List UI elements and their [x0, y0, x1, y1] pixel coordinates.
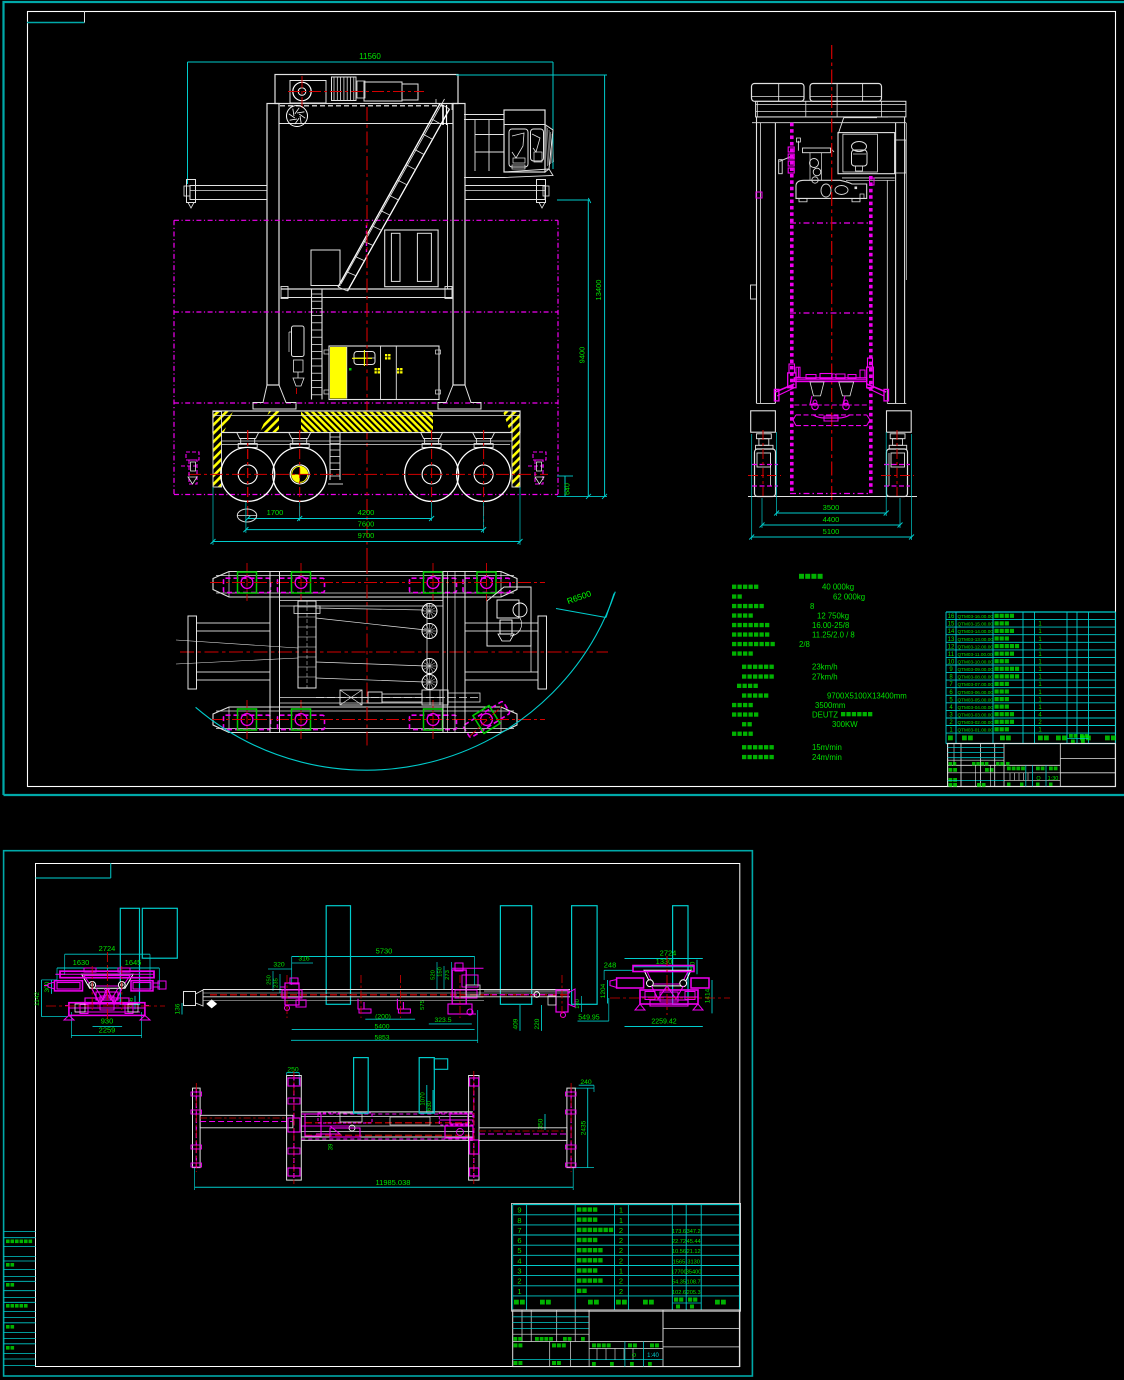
svg-text:22.72: 22.72 [672, 1239, 686, 1245]
svg-text:220: 220 [534, 1018, 541, 1029]
svg-text:150: 150 [438, 967, 444, 977]
svg-text:62 000kg: 62 000kg [833, 592, 865, 601]
svg-text:2435: 2435 [580, 1120, 587, 1135]
svg-text:347.2: 347.2 [687, 1229, 701, 1235]
svg-text:11985.038: 11985.038 [376, 1178, 411, 1187]
svg-text:QTM03-13.00.00: QTM03-13.00.00 [958, 637, 994, 642]
svg-text:5: 5 [517, 1246, 521, 1255]
svg-text:1:30: 1:30 [1048, 776, 1059, 782]
svg-text:8: 8 [517, 1216, 521, 1225]
svg-text:O: O [1036, 776, 1041, 782]
svg-text:630: 630 [427, 1100, 433, 1111]
svg-text:11.25/2.0 / 8: 11.25/2.0 / 8 [812, 630, 855, 639]
svg-text:16.00-25/8: 16.00-25/8 [812, 621, 849, 630]
svg-text:1414: 1414 [705, 988, 712, 1003]
svg-text:273: 273 [445, 970, 451, 980]
svg-text:24m/min: 24m/min [812, 753, 842, 762]
svg-text:205.3: 205.3 [687, 1290, 701, 1296]
svg-text:7600: 7600 [358, 519, 375, 528]
svg-text:520: 520 [431, 970, 437, 980]
svg-text:7: 7 [517, 1226, 521, 1235]
svg-text:12: 12 [948, 644, 955, 650]
svg-text:O: O [632, 1353, 637, 1359]
svg-text:3500: 3500 [823, 503, 840, 512]
svg-text:102.6: 102.6 [672, 1290, 686, 1296]
svg-text:2724: 2724 [99, 944, 116, 953]
svg-text:3500mm: 3500mm [815, 701, 845, 710]
svg-text:14: 14 [948, 629, 955, 635]
svg-text:9700: 9700 [358, 531, 375, 540]
svg-text:QTM03-10.00.00: QTM03-10.00.00 [958, 660, 994, 665]
svg-text:QTM03-01.00.00: QTM03-01.00.00 [958, 728, 994, 733]
svg-text:23km/h: 23km/h [812, 663, 838, 672]
svg-text:13: 13 [948, 637, 955, 643]
svg-text:2259: 2259 [99, 1026, 116, 1035]
svg-text:180: 180 [575, 999, 581, 1009]
svg-text:1: 1 [619, 1216, 623, 1225]
svg-text:1630: 1630 [73, 958, 90, 967]
svg-text:39: 39 [328, 1143, 334, 1150]
svg-text:2: 2 [619, 1226, 623, 1235]
svg-text:9400: 9400 [578, 347, 587, 364]
svg-text:10: 10 [948, 660, 955, 666]
svg-text:2: 2 [619, 1236, 623, 1245]
svg-text:1330: 1330 [656, 957, 673, 966]
svg-text:45.44: 45.44 [687, 1239, 701, 1245]
svg-text:316: 316 [298, 955, 310, 962]
svg-text:1645: 1645 [125, 958, 142, 967]
svg-text:9: 9 [517, 1206, 521, 1215]
svg-text:35400: 35400 [686, 1270, 702, 1276]
svg-text:15: 15 [948, 622, 955, 628]
svg-text:QTM03-05.00.00: QTM03-05.00.00 [958, 697, 994, 702]
svg-text:2: 2 [619, 1287, 623, 1296]
svg-text:300KW: 300KW [832, 720, 858, 729]
svg-text:2/8: 2/8 [799, 640, 810, 649]
svg-text:QTM03-14.00.00: QTM03-14.00.00 [958, 629, 994, 634]
svg-text:40 000kg: 40 000kg [822, 583, 854, 592]
svg-text:4: 4 [517, 1256, 521, 1265]
svg-text:3130: 3130 [687, 1259, 699, 1265]
svg-text:6: 6 [517, 1236, 521, 1245]
svg-text:2259.42: 2259.42 [651, 1019, 676, 1026]
svg-text:21.12: 21.12 [687, 1249, 701, 1255]
svg-text:9700X5100X13400mm: 9700X5100X13400mm [827, 691, 907, 700]
svg-text:320: 320 [273, 962, 285, 969]
svg-text:QTM03-08.00.00: QTM03-08.00.00 [958, 675, 994, 680]
svg-text:1070: 1070 [420, 1092, 426, 1106]
svg-text:1565: 1565 [673, 1259, 685, 1265]
svg-text:575: 575 [420, 1000, 426, 1010]
svg-text:17700: 17700 [671, 1270, 687, 1276]
svg-text:173.6: 173.6 [672, 1229, 686, 1235]
svg-text:2: 2 [619, 1277, 623, 1286]
svg-text:4200: 4200 [358, 508, 375, 517]
svg-text:5730: 5730 [376, 947, 393, 956]
svg-text:2: 2 [619, 1246, 623, 1255]
svg-text:QTM03-04.00.00: QTM03-04.00.00 [958, 705, 994, 710]
svg-text:16: 16 [948, 614, 955, 620]
svg-text:136: 136 [175, 1003, 182, 1014]
svg-text:QTM03-02.00.00: QTM03-02.00.00 [958, 720, 994, 725]
svg-text:QTM03-11.00.00: QTM03-11.00.00 [958, 652, 993, 657]
svg-text:1:40: 1:40 [647, 1353, 659, 1359]
svg-text:11560: 11560 [359, 52, 381, 61]
svg-text:QTM03-03.00.00: QTM03-03.00.00 [958, 713, 994, 718]
svg-text:409: 409 [513, 1018, 520, 1029]
svg-text:QTM03-06.00.00: QTM03-06.00.00 [958, 690, 994, 695]
svg-text:640: 640 [565, 483, 572, 495]
svg-text:250: 250 [267, 975, 273, 985]
svg-text:QTM03-15.00.00: QTM03-15.00.00 [958, 622, 994, 627]
svg-text:12 750kg: 12 750kg [817, 611, 849, 620]
svg-text:323.5: 323.5 [434, 1017, 451, 1024]
svg-text:QTM03-16.00.00: QTM03-16.00.00 [958, 614, 994, 619]
svg-text:27km/h: 27km/h [812, 672, 838, 681]
svg-text:1700: 1700 [267, 508, 284, 517]
svg-text:2: 2 [619, 1256, 623, 1265]
svg-text:15m/min: 15m/min [812, 743, 842, 752]
svg-text:3: 3 [517, 1267, 521, 1276]
svg-text:1204: 1204 [600, 983, 607, 998]
svg-text:54.35: 54.35 [672, 1280, 686, 1286]
svg-text:QTM03-12.00.00: QTM03-12.00.00 [958, 644, 994, 649]
svg-text:1: 1 [619, 1267, 623, 1276]
svg-text:QTM03-09.00.00: QTM03-09.00.00 [958, 667, 994, 672]
svg-text:248: 248 [604, 960, 617, 969]
svg-text:108.7: 108.7 [687, 1280, 701, 1286]
svg-text:235: 235 [274, 978, 280, 988]
svg-text:DEUTZ: DEUTZ [812, 710, 838, 719]
svg-text:QTM03-07.00.00: QTM03-07.00.00 [958, 682, 994, 687]
svg-text:10.56: 10.56 [672, 1249, 686, 1255]
svg-text:13400: 13400 [594, 280, 603, 301]
svg-text:8: 8 [810, 602, 814, 611]
svg-text:4400: 4400 [823, 515, 840, 524]
svg-text:5100: 5100 [823, 527, 840, 536]
svg-text:2: 2 [517, 1277, 521, 1286]
svg-text:549.95: 549.95 [578, 1015, 600, 1022]
svg-text:1: 1 [517, 1287, 521, 1296]
svg-text:11: 11 [948, 652, 955, 658]
svg-text:1142: 1142 [34, 992, 41, 1006]
svg-text:1: 1 [619, 1206, 623, 1215]
